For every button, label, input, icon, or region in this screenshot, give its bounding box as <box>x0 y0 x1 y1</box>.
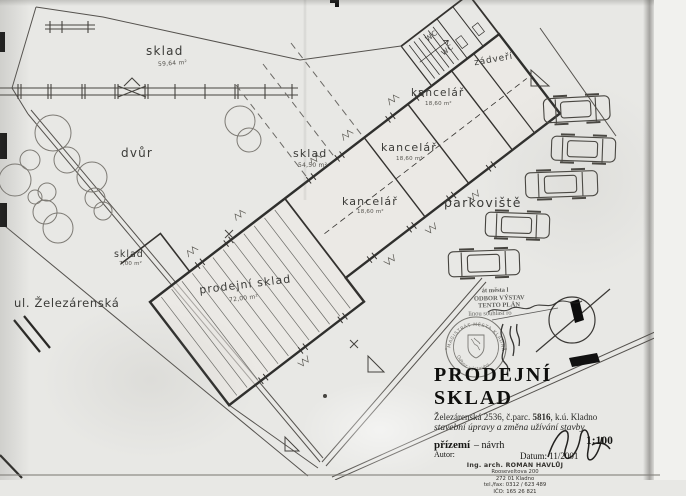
room-area-kancelar-2: 18,60 m² <box>396 156 423 162</box>
room-label-kancelar-2: kancelář <box>381 141 437 154</box>
car <box>485 210 550 240</box>
room-label-sklad-small: sklad <box>114 249 144 260</box>
room-area-sklad-mid: 54,50 m² <box>298 162 327 169</box>
fence-lines <box>0 21 298 99</box>
seal-shield <box>468 335 484 358</box>
room-label-sklad-mid: sklad <box>293 147 327 160</box>
room-label-kancelar-3: kancelář <box>342 195 398 208</box>
room-area-sklad-small: 7,00 m² <box>119 261 142 267</box>
address-post: , k.ú. Kladno <box>550 412 597 422</box>
address-pre: Železárenská 2536, č.parc. <box>434 412 532 422</box>
room-label-dvur: dvůr <box>121 146 153 160</box>
phase-scale-row: přízemí – návrh 1:100 <box>434 435 646 448</box>
drawing-scale: 1:100 <box>586 435 613 447</box>
approval-stamp-text: át města l ODBOR VÝSTAV TENTO PLÁN linou… <box>468 286 526 317</box>
car <box>551 134 616 164</box>
drawing-address: Železárenská 2536, č.parc. 5816, k.ú. Kl… <box>434 412 646 422</box>
stamp-line-3: TENTO PLÁN <box>478 301 525 310</box>
title-block: PRODEJNÍ SKLAD Železárenská 2536, č.parc… <box>434 364 646 496</box>
author-reg: IČO: 165 26 821 <box>460 489 570 496</box>
drawing-date: Datum: 11/2001 <box>520 451 578 461</box>
room-label-sklad-yard: sklad <box>146 44 184 58</box>
area-label-parkoviste: parkoviště <box>444 195 522 210</box>
author-date-row: Autor: Datum: 11/2001 Ing. arch. ROMAN H… <box>434 450 646 496</box>
drawing-subtitle: stavební úpravy a změna užívání stavby <box>434 423 646 433</box>
crossed-circle-mark <box>536 289 610 352</box>
room-label-kancelar-1: kancelář <box>411 87 464 99</box>
room-area-kancelar-1: 18,60 m² <box>425 101 452 107</box>
stamp-line-4: linou souhlasí ro <box>468 309 525 318</box>
author-label: Autor: <box>434 450 455 459</box>
room-area-kancelar-3: 18,60 m² <box>357 209 384 215</box>
author-name: Ing. arch. ROMAN HAVLŮJ <box>460 462 570 469</box>
address-parcel: 5816 <box>532 412 550 422</box>
author-info: Ing. arch. ROMAN HAVLŮJ Rooseveltova 200… <box>460 462 570 495</box>
corner-hatch-marks <box>0 316 50 478</box>
car <box>525 168 598 199</box>
drawing-title: PRODEJNÍ SKLAD <box>434 364 646 410</box>
wc-fixture <box>456 36 468 49</box>
street-label: ul. Železárenská <box>14 296 119 310</box>
seal-lion <box>471 338 480 350</box>
car <box>448 248 520 279</box>
